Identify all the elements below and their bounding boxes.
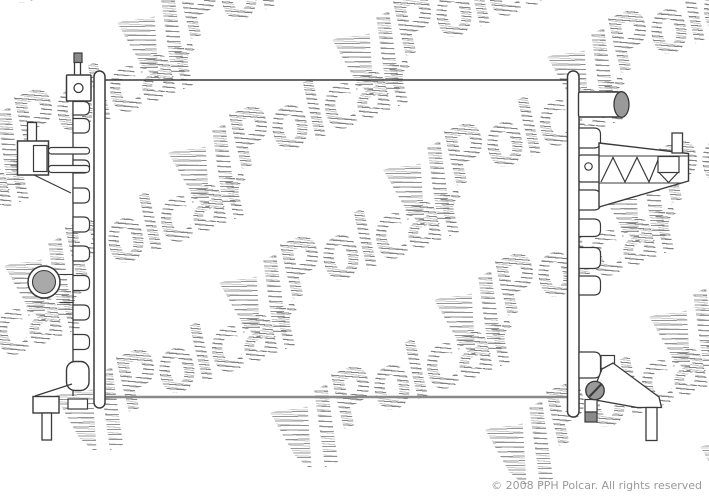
clamp-bar-upper xyxy=(49,148,90,155)
left-tank-tabs-1 xyxy=(73,119,90,134)
left-tank-tabs-8 xyxy=(73,335,90,350)
left-tank-tabs-3 xyxy=(73,188,90,203)
left-tank-tabs-5 xyxy=(73,246,90,261)
drain-tube-tip xyxy=(585,412,597,422)
right-tank-tabs-2 xyxy=(579,219,601,237)
left-tank-tabs-6 xyxy=(73,276,90,291)
lower-arm-pin xyxy=(646,408,657,441)
right-tank-tabs-4 xyxy=(579,276,601,295)
clamp-diagonal xyxy=(34,175,71,193)
truss-stub xyxy=(672,133,683,153)
left-foot-side-block xyxy=(68,399,88,409)
drain-tube xyxy=(585,400,597,413)
hose-clamp-stem xyxy=(28,123,37,143)
radiator-technical-drawing xyxy=(0,0,709,496)
left-tank-tabs-7 xyxy=(73,305,90,320)
bleed-screw-stem xyxy=(75,62,81,76)
right-tank-tabs-1 xyxy=(579,190,601,210)
right-tank-tabs-5 xyxy=(579,352,601,378)
left-tank-tabs-4 xyxy=(73,217,90,232)
radiator-catalog-image: PolcarPolcarPolcarPolcarPolcarPolcarPolc… xyxy=(0,0,709,496)
left-foot-diagonal xyxy=(35,384,72,396)
copyright-notice: © 2008 PPH Polcar. All rights reserved xyxy=(491,479,702,492)
clamp-bar-lower xyxy=(49,166,90,173)
left-side-plate xyxy=(94,71,105,408)
left-port-plug xyxy=(33,271,56,294)
bleed-screw-cap xyxy=(74,53,82,63)
inlet-pipe-opening xyxy=(614,92,629,118)
left-tank-tabs-0 xyxy=(73,102,90,116)
right-side-plate xyxy=(568,71,580,417)
left-foot xyxy=(33,397,59,414)
right-tab-hole xyxy=(585,163,592,170)
right-tank-tabs-3 xyxy=(579,248,601,269)
left-foot-pin xyxy=(42,413,52,440)
upper-bracket-hole xyxy=(74,84,83,93)
right-tank-tabs-0 xyxy=(579,128,601,148)
lower-left-tab xyxy=(67,362,90,391)
hose-clamp-inner xyxy=(34,146,48,172)
truss-inner-block xyxy=(658,157,679,173)
